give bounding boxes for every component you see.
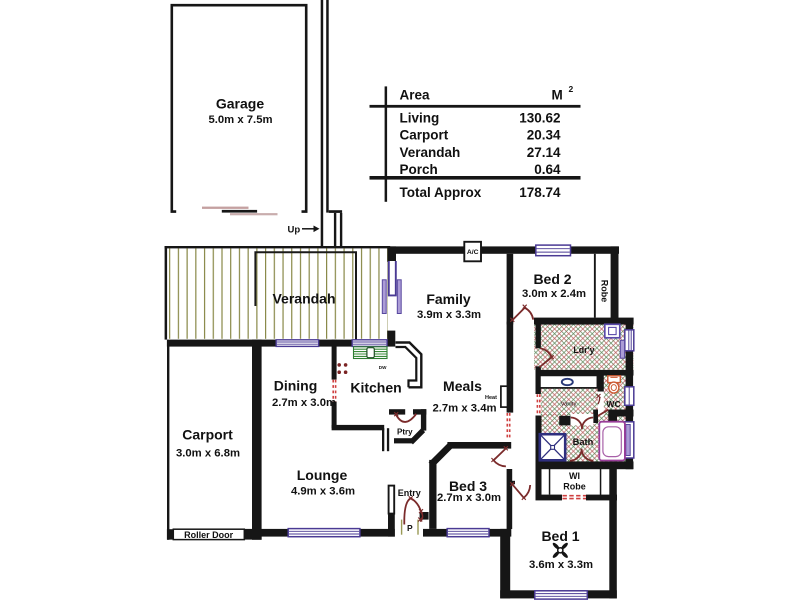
svg-text:Bed 2: Bed 2 xyxy=(533,271,571,287)
svg-text:Carport: Carport xyxy=(400,128,449,143)
svg-text:5.0m x 7.5m: 5.0m x 7.5m xyxy=(208,114,272,126)
svg-text:2.7m x 3.0m: 2.7m x 3.0m xyxy=(272,397,336,409)
svg-text:Heat: Heat xyxy=(485,395,497,401)
svg-text:3.9m x 3.3m: 3.9m x 3.3m xyxy=(417,309,481,321)
svg-text:Lounge: Lounge xyxy=(297,467,348,483)
svg-text:Porch: Porch xyxy=(400,162,438,177)
svg-text:4.9m x 3.6m: 4.9m x 3.6m xyxy=(291,485,355,497)
svg-text:DW: DW xyxy=(379,365,387,370)
svg-text:M: M xyxy=(552,88,563,103)
svg-text:Family: Family xyxy=(426,291,471,307)
svg-text:130.62: 130.62 xyxy=(519,110,560,125)
svg-text:Entry: Entry xyxy=(398,488,421,498)
svg-text:WI: WI xyxy=(569,471,580,481)
svg-text:20.34: 20.34 xyxy=(527,128,561,143)
svg-text:Robe: Robe xyxy=(563,481,586,491)
svg-text:178.74: 178.74 xyxy=(519,185,561,200)
svg-text:Ldr'y: Ldr'y xyxy=(573,345,594,355)
svg-text:Ptry: Ptry xyxy=(397,427,413,436)
svg-text:Meals: Meals xyxy=(443,378,482,394)
svg-text:Bath: Bath xyxy=(573,437,594,447)
svg-text:Vanity: Vanity xyxy=(561,402,577,408)
svg-text:2.7m x 3.0m: 2.7m x 3.0m xyxy=(437,492,501,504)
svg-text:Verandah: Verandah xyxy=(272,291,335,307)
svg-text:Up: Up xyxy=(288,225,301,236)
svg-text:Robe: Robe xyxy=(600,280,610,303)
svg-text:3.0m x 2.4m: 3.0m x 2.4m xyxy=(522,288,586,300)
svg-text:2.7m x 3.4m: 2.7m x 3.4m xyxy=(432,402,496,414)
svg-text:2: 2 xyxy=(569,84,574,94)
svg-text:27.14: 27.14 xyxy=(527,145,561,160)
svg-text:Roller Door: Roller Door xyxy=(184,530,234,540)
svg-text:Total Approx: Total Approx xyxy=(400,185,482,200)
svg-text:A/C: A/C xyxy=(467,249,479,256)
svg-text:Carport: Carport xyxy=(182,427,233,443)
svg-text:3.0m x 6.8m: 3.0m x 6.8m xyxy=(176,448,240,460)
svg-text:WC: WC xyxy=(606,399,620,409)
svg-text:3.6m x 3.3m: 3.6m x 3.3m xyxy=(529,559,593,571)
svg-text:Dining: Dining xyxy=(274,377,318,393)
svg-text:Area: Area xyxy=(400,88,431,103)
svg-text:Bed 1: Bed 1 xyxy=(541,528,579,544)
svg-text:0.64: 0.64 xyxy=(534,162,561,177)
svg-text:Verandah: Verandah xyxy=(400,145,461,160)
svg-text:Living: Living xyxy=(400,110,440,125)
svg-text:P: P xyxy=(407,523,413,533)
svg-text:Garage: Garage xyxy=(216,96,264,112)
svg-text:Kitchen: Kitchen xyxy=(350,379,401,395)
